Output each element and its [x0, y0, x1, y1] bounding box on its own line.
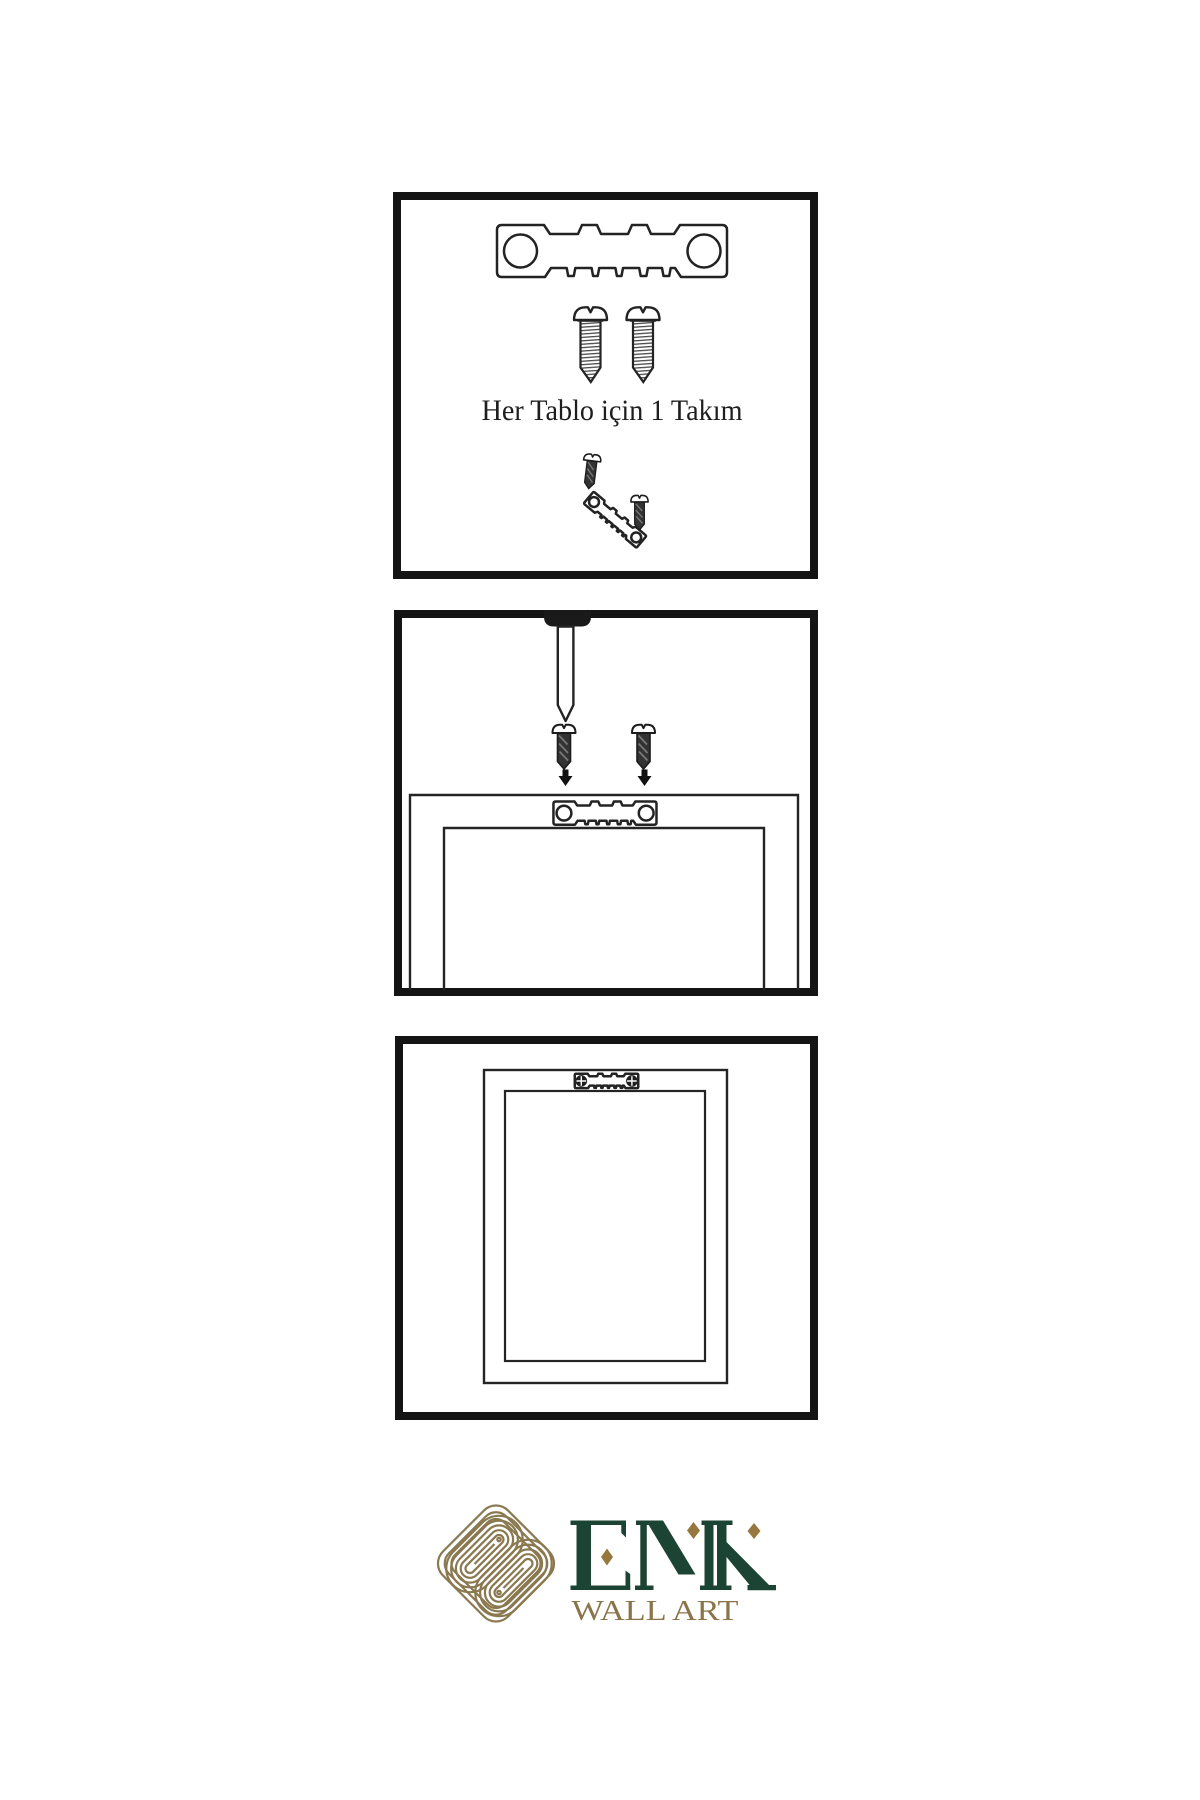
svg-text:Her Tablo için 1 Takım: Her Tablo için 1 Takım: [482, 394, 743, 427]
svg-text:WALL ART: WALL ART: [572, 1595, 739, 1627]
